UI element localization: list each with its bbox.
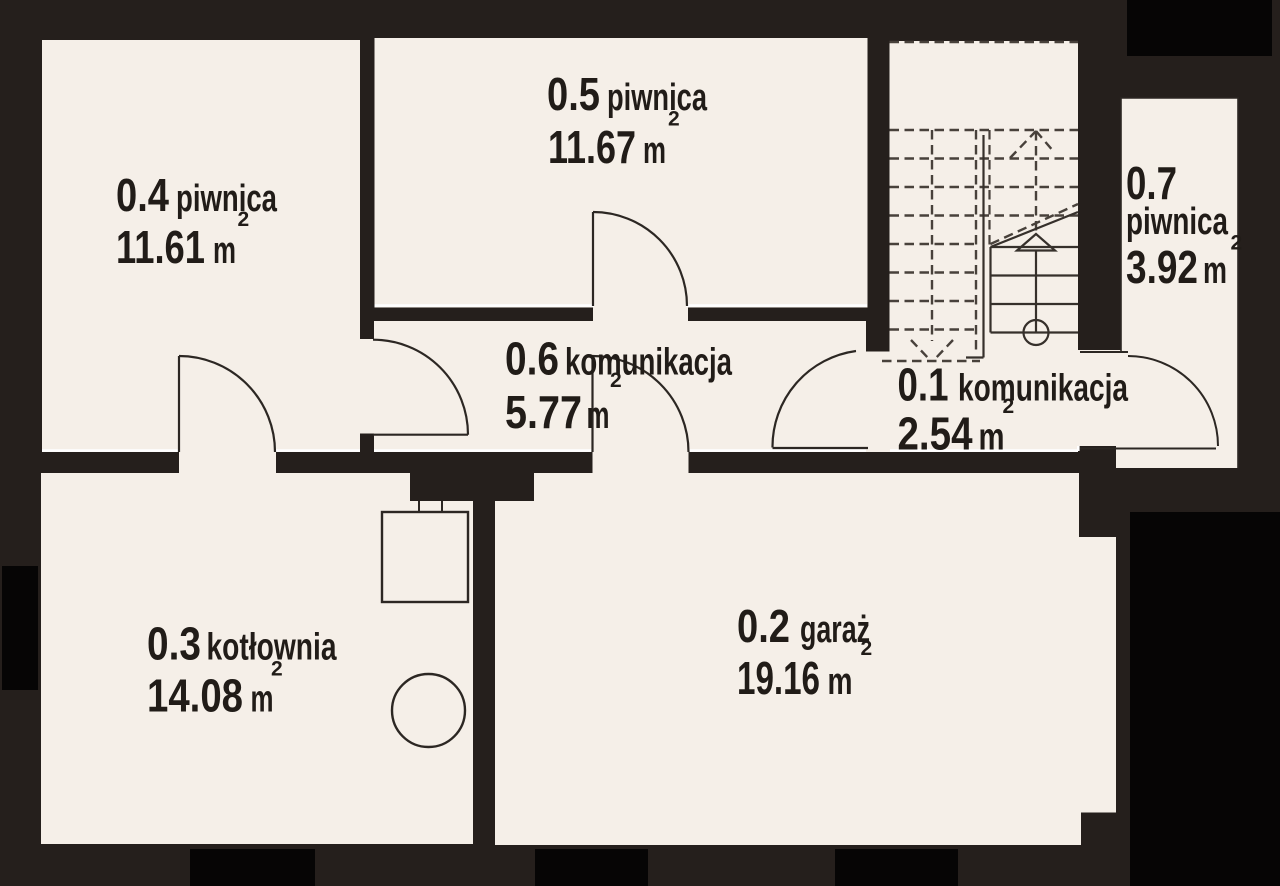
svg-text:19.16: 19.16 <box>737 652 820 704</box>
svg-text:2.54: 2.54 <box>898 408 973 460</box>
svg-text:m: m <box>213 230 236 272</box>
svg-text:2: 2 <box>271 658 283 681</box>
svg-text:5.77: 5.77 <box>505 386 582 438</box>
svg-text:11.61: 11.61 <box>116 221 205 273</box>
svg-text:m: m <box>1203 250 1227 292</box>
svg-text:2: 2 <box>861 637 873 660</box>
svg-text:0.1: 0.1 <box>898 359 949 411</box>
svg-text:m: m <box>251 679 274 721</box>
svg-text:2: 2 <box>238 208 250 231</box>
svg-text:0.2: 0.2 <box>737 600 790 652</box>
svg-text:2: 2 <box>610 369 622 392</box>
svg-text:komunikacja: komunikacja <box>958 368 1129 410</box>
svg-text:piwnica: piwnica <box>176 178 278 220</box>
svg-text:piwnica: piwnica <box>1126 201 1229 243</box>
svg-text:0.6: 0.6 <box>505 333 559 385</box>
svg-text:piwnica: piwnica <box>607 77 708 119</box>
svg-text:2: 2 <box>1231 232 1243 255</box>
svg-text:m: m <box>828 661 853 703</box>
svg-text:2: 2 <box>1003 395 1015 418</box>
svg-text:14.08: 14.08 <box>147 670 243 722</box>
svg-text:0.5: 0.5 <box>547 68 600 120</box>
svg-text:0.3: 0.3 <box>147 618 201 670</box>
svg-text:m: m <box>643 130 666 172</box>
svg-text:0.4: 0.4 <box>116 169 169 221</box>
svg-text:komunikacja: komunikacja <box>565 342 733 384</box>
svg-text:2: 2 <box>668 108 680 131</box>
svg-text:m: m <box>979 417 1005 459</box>
svg-text:garaż: garaż <box>800 609 870 651</box>
svg-text:3.92: 3.92 <box>1126 241 1198 293</box>
svg-text:m: m <box>587 395 610 437</box>
svg-text:11.67: 11.67 <box>548 121 636 173</box>
